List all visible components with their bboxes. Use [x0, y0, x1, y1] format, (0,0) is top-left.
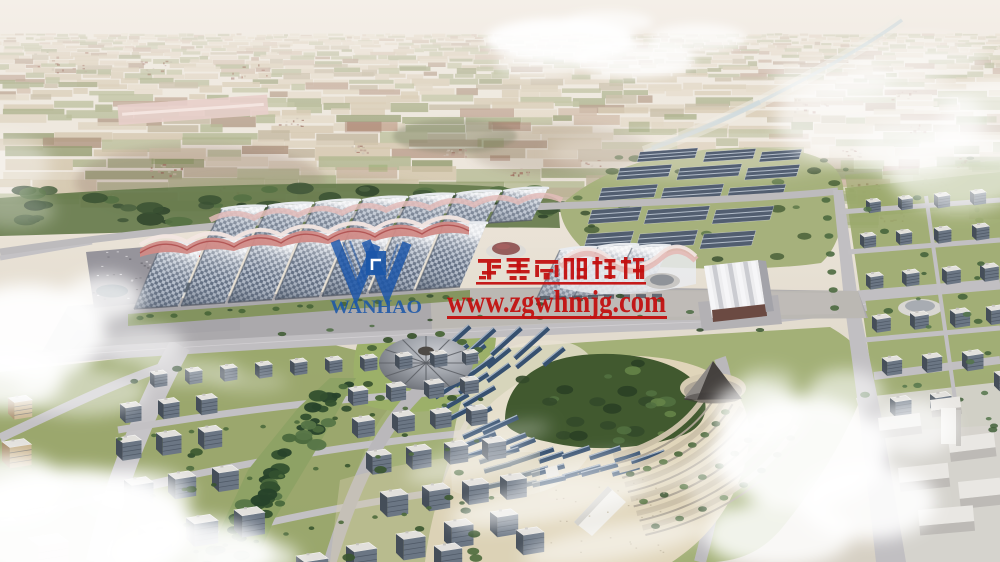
- svg-text:WANHAO: WANHAO: [330, 297, 422, 318]
- svg-text:www.zgwhmjg.com: www.zgwhmjg.com: [447, 283, 666, 319]
